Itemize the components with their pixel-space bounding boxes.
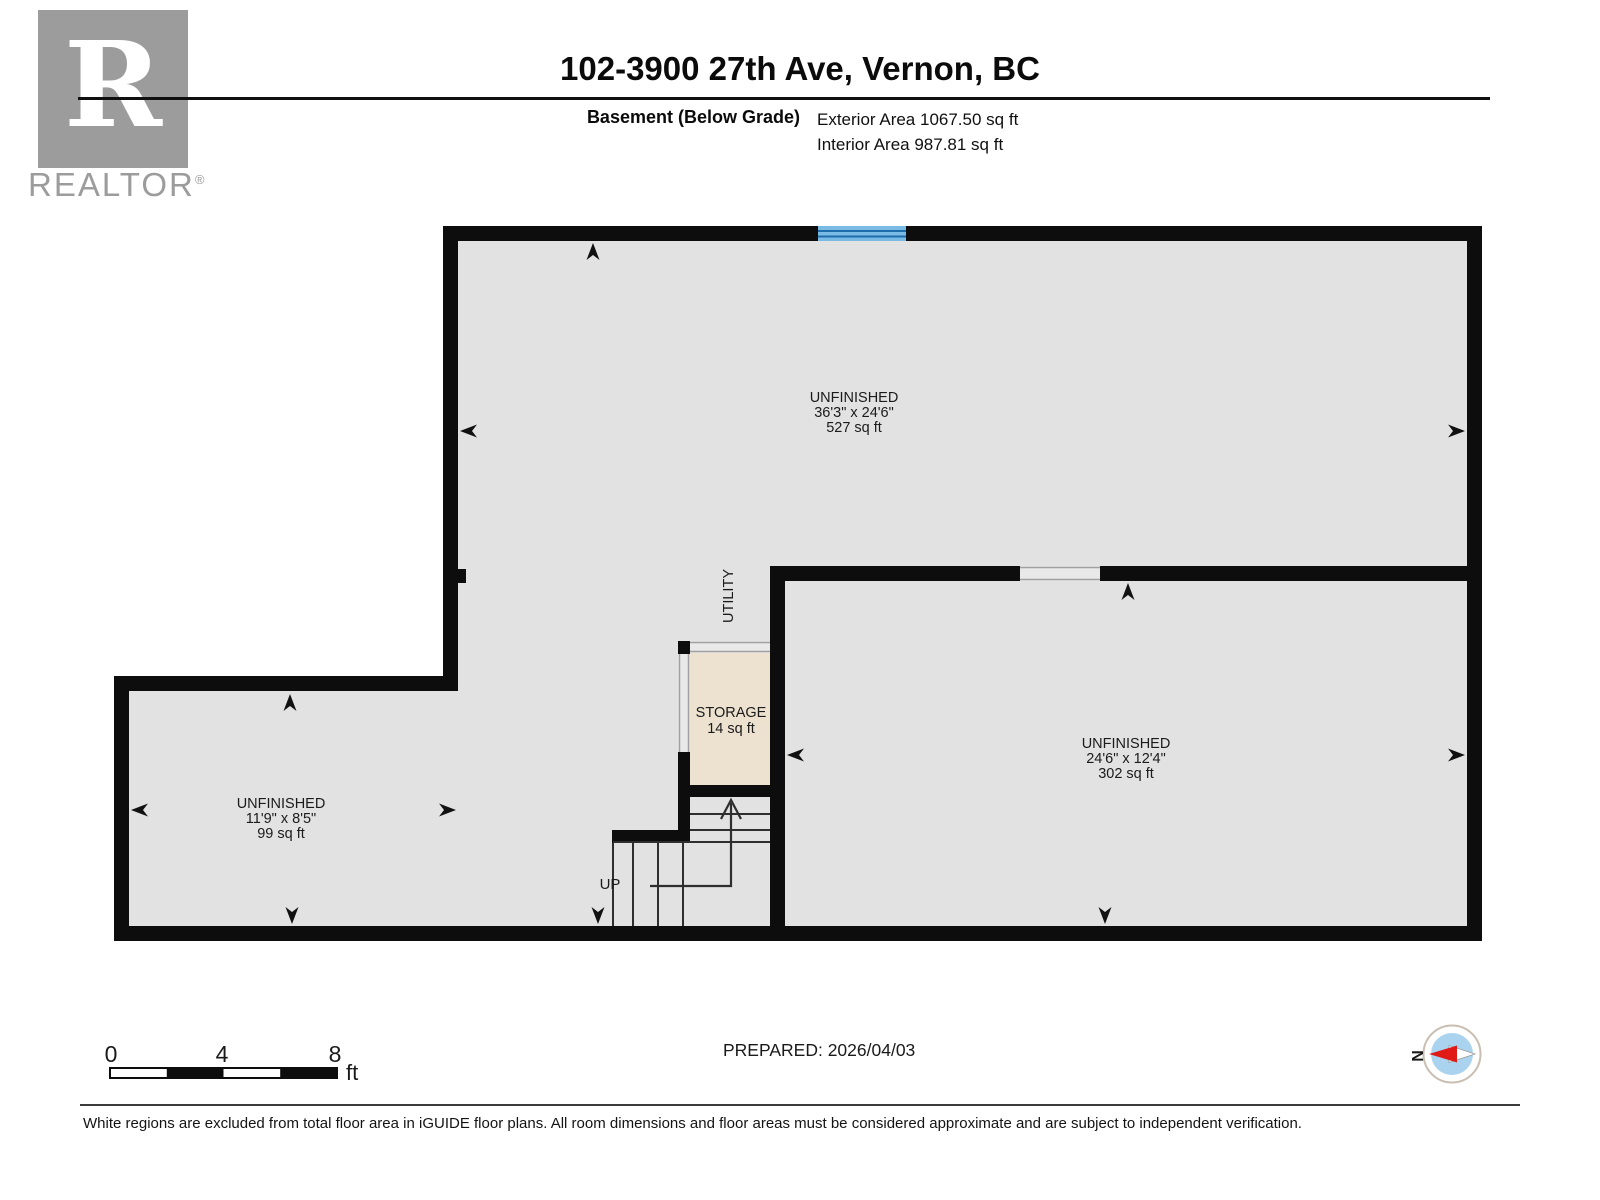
scale-bar-segment: [167, 1067, 224, 1079]
room-label-dims: 11'9" x 8'5": [246, 811, 316, 827]
wall-right-room-left: [770, 566, 785, 941]
scale-bar: 0 4 8 ft: [105, 1041, 359, 1085]
room-label-area: 527 sq ft: [826, 420, 882, 436]
scale-tick-0: 0: [105, 1041, 118, 1067]
compass-north-label: N: [1410, 1050, 1427, 1062]
scale-tick-8: 8: [329, 1041, 342, 1067]
floor-area: [129, 241, 1467, 926]
room-label-area: 14 sq ft: [707, 721, 755, 737]
room-label-name: UNFINISHED: [237, 796, 326, 812]
scale-bar-segment: [280, 1067, 337, 1079]
scale-unit-label: ft: [346, 1060, 358, 1085]
wall-storage-left: [678, 752, 690, 843]
compass-icon: N: [1410, 1026, 1481, 1083]
wall-bottom: [114, 926, 1482, 941]
room-label-utility: UTILITY: [721, 569, 737, 623]
wall-top-room-left: [443, 226, 458, 691]
window-glass: [818, 226, 906, 241]
prepared-date: PREPARED: 2026/04/03: [723, 1040, 915, 1060]
room-label-area: 302 sq ft: [1098, 766, 1154, 782]
wall-left-room-left: [114, 676, 129, 926]
room-label-dims: 36'3" x 24'6": [814, 405, 894, 421]
footer-divider: [80, 1104, 1520, 1106]
room-label-area: 99 sq ft: [257, 826, 305, 842]
wall-mid-horizontal: [770, 566, 1467, 581]
wall-right: [1467, 226, 1482, 941]
stairs-up-label: UP: [600, 876, 621, 893]
room-label-name: STORAGE: [696, 705, 767, 721]
wall-storage-bottom: [678, 785, 785, 797]
wall-storage-left-stub: [678, 641, 690, 654]
wall-left-room-top: [114, 676, 458, 691]
disclaimer-text: White regions are excluded from total fl…: [83, 1115, 1533, 1132]
floor-plan-page: R REALTOR® 102-3900 27th Ave, Vernon, BC…: [0, 0, 1600, 1200]
window-icon: [818, 226, 906, 241]
wall-stub: [458, 569, 466, 583]
wall-top: [443, 226, 1482, 241]
scale-tick-4: 4: [216, 1041, 229, 1067]
room-label-dims: 24'6" x 12'4": [1086, 751, 1166, 767]
floor-plan-svg: UNFINISHED 36'3" x 24'6" 527 sq ft UNFIN…: [0, 0, 1600, 1200]
room-label-name: UNFINISHED: [810, 390, 899, 406]
room-label-name: UNFINISHED: [1082, 736, 1171, 752]
